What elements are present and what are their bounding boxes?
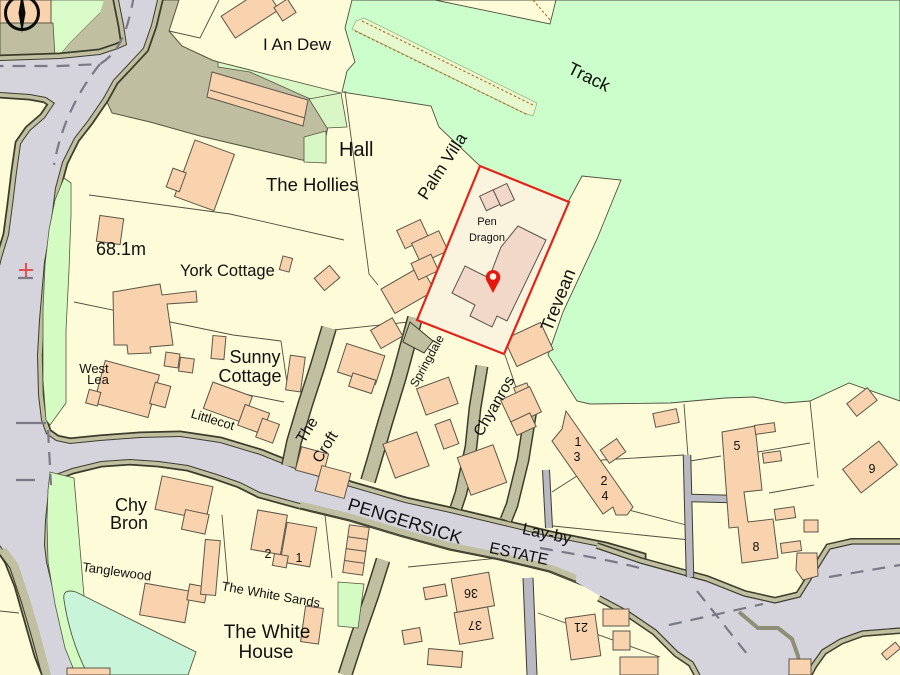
svg-text:Dragon: Dragon [469, 232, 505, 244]
svg-text:5: 5 [734, 439, 741, 453]
svg-text:Lea: Lea [87, 372, 109, 387]
svg-text:Chy: Chy [115, 495, 147, 515]
svg-text:1: 1 [575, 435, 582, 449]
svg-text:9: 9 [869, 462, 876, 476]
svg-text:2: 2 [265, 547, 272, 561]
svg-text:York Cottage: York Cottage [180, 262, 275, 280]
svg-text:68.1m: 68.1m [96, 239, 146, 259]
svg-text:House: House [239, 642, 294, 663]
svg-text:The White: The White [224, 622, 311, 643]
svg-text:1: 1 [296, 551, 303, 565]
svg-text:Bron: Bron [110, 513, 148, 533]
svg-text:I An Dew: I An Dew [263, 35, 332, 54]
svg-text:The Hollies: The Hollies [266, 174, 359, 195]
svg-text:4: 4 [602, 489, 609, 503]
svg-text:21: 21 [574, 620, 588, 634]
svg-text:8: 8 [753, 540, 760, 554]
svg-text:2: 2 [601, 474, 608, 488]
svg-text:Hall: Hall [339, 139, 373, 161]
svg-text:Pen: Pen [477, 216, 497, 228]
svg-text:3: 3 [574, 450, 581, 464]
svg-text:36: 36 [464, 586, 478, 600]
svg-text:Cottage: Cottage [218, 366, 281, 386]
svg-text:Sunny: Sunny [229, 347, 280, 367]
svg-text:37: 37 [468, 618, 482, 632]
